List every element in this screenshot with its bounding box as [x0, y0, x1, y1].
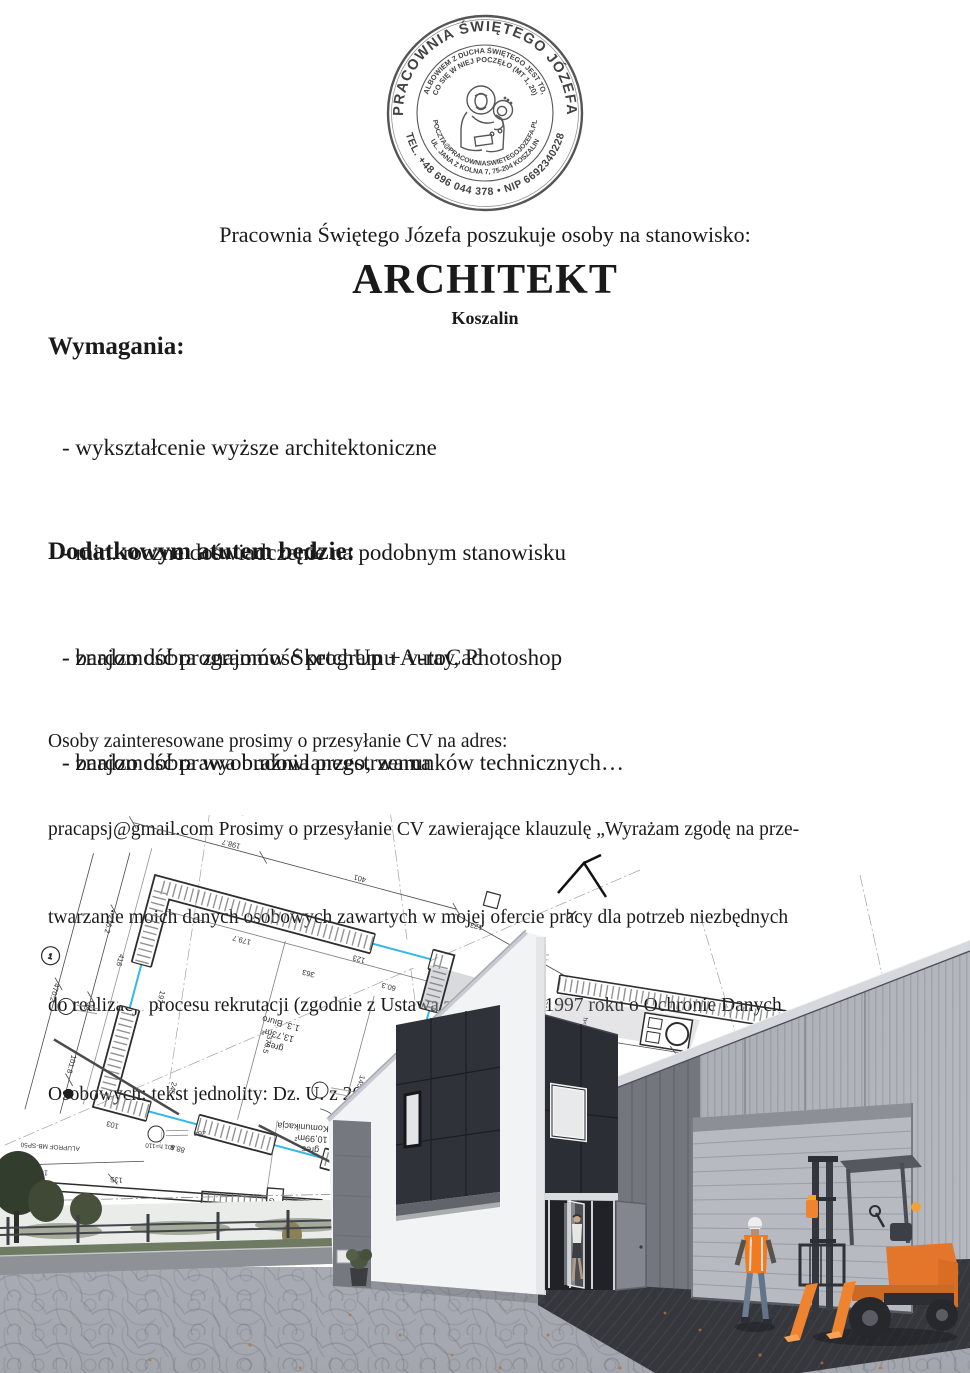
roof-fascia [616, 940, 970, 1088]
location-subtitle: Koszalin [0, 308, 970, 329]
job-poster: PRACOWNIA ŚWIĘTEGO JÓZEFA TEL. +48 696 0… [0, 0, 970, 1373]
contact-line: Osoby zainteresowane prosimy o przesyłan… [48, 727, 948, 756]
list-item: - wykształcenie wyższe architektoniczne [62, 430, 624, 465]
box-window [405, 1092, 420, 1147]
entrance-volume [545, 1015, 618, 1195]
volume-window [552, 1085, 585, 1140]
office-building [328, 930, 646, 1304]
saint-joseph-icon [461, 86, 513, 152]
cantilever-box [396, 1005, 500, 1221]
architectural-illustration: 1 198.7 401 123 79.3 179.7 363 60.3 123 … [0, 815, 970, 1373]
render-scene [0, 815, 970, 1373]
glass-entrance [545, 1193, 646, 1290]
page-title: ARCHITEKT [0, 256, 970, 304]
company-stamp: PRACOWNIA ŚWIĘTEGO JÓZEFA TEL. +48 696 0… [380, 8, 590, 218]
intro-line: Pracownia Świętego Józefa poszukuje osob… [0, 222, 970, 248]
requirements-heading: Wymagania: [48, 333, 185, 361]
advantages-heading: Dodatkowym atutem będzie: [48, 538, 355, 566]
